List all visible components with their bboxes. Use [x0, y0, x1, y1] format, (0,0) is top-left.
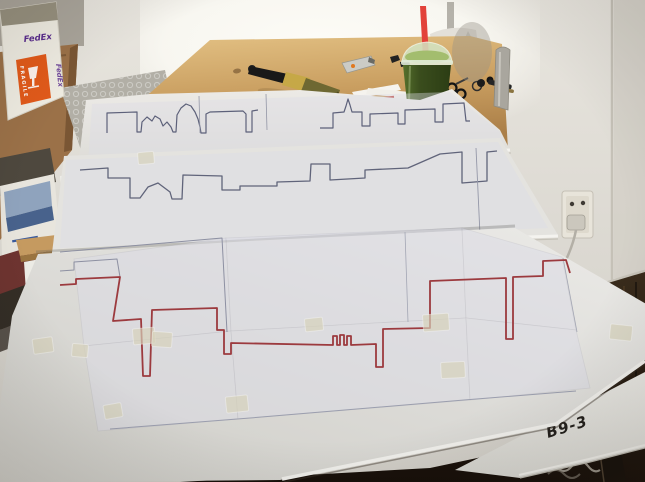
workspace-photo: FRAGILE FedEx FedEx: [0, 0, 645, 482]
scene-canvas: FRAGILE FedEx FedEx: [0, 0, 645, 482]
photo-vignette: [0, 0, 645, 482]
